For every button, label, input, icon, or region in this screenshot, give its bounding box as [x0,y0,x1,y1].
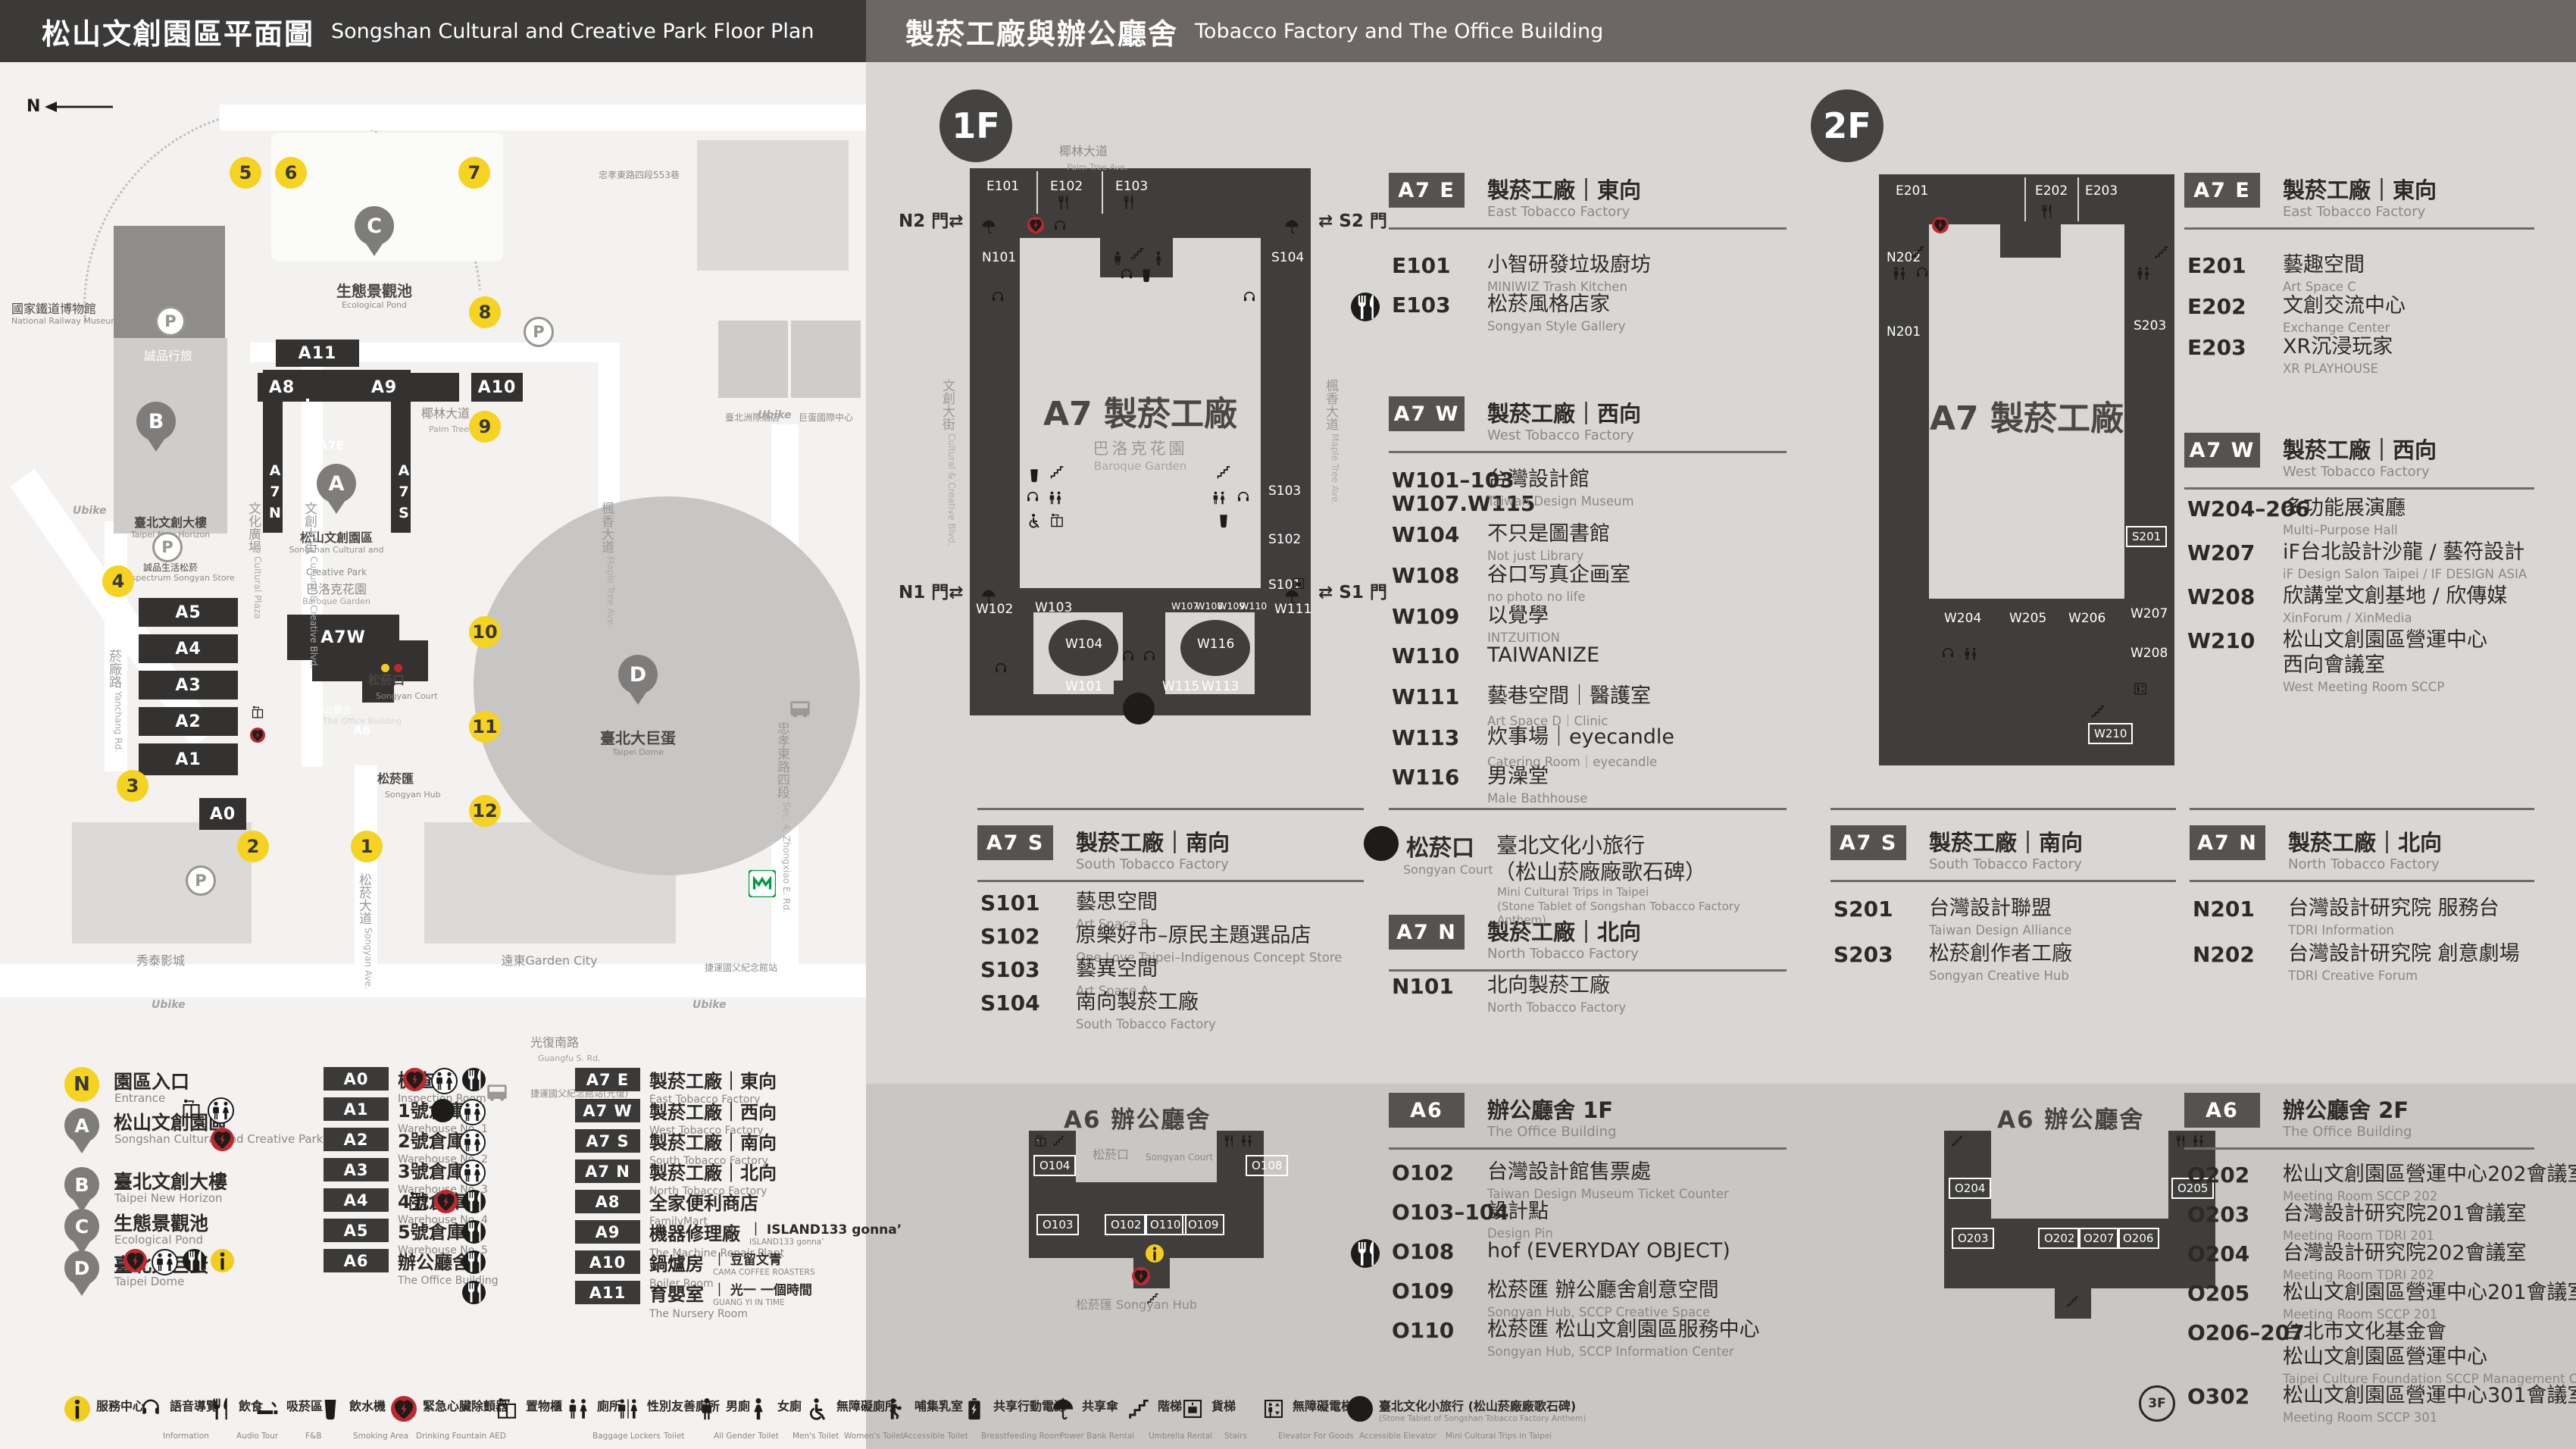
strip-label-zh: 共享傘 [1082,1396,1118,1414]
strip-item: 男廁 Men's Toilet [694,1396,750,1422]
strip-labels: 哺集乳室 Breastfeeding Room [914,1396,963,1422]
strip-item: 緊急心臟除顫器 AED [391,1396,508,1422]
strip-icon [1126,1396,1152,1422]
strip-icon [391,1396,417,1422]
umbrella-icon [1050,1396,1076,1422]
strip-item: 女廁 Women's Toilet [746,1396,802,1422]
smoking-icon [255,1396,280,1422]
strip-label-zh: 階梯 [1158,1396,1182,1414]
strip-label-en: Accessible Toilet [903,1432,968,1441]
strip-label-en: All Gender Toilet [714,1432,779,1441]
strip-label-zh: 飲水機 [349,1396,386,1414]
strip-icon [694,1396,720,1422]
strip-label-en: Toilet [664,1432,684,1441]
strip-item: 臺北文化小旅行 (松山菸廠廠歌石碑) Mini Cultural Trips i… [1347,1396,1586,1423]
strip-item: 吸菸區 Smoking Area [255,1396,323,1422]
strip-icon [961,1396,987,1422]
strip-labels: 階梯 Stairs [1158,1396,1182,1422]
wheelchair-icon [805,1396,830,1422]
strip-labels: 置物櫃 Baggage Lockers [526,1396,562,1422]
strip-labels: 飲水機 Drinking Fountain [349,1396,386,1422]
powerbank-icon [961,1396,987,1422]
walk-icon [1347,1396,1373,1422]
strip-icon [317,1396,343,1422]
strip-label-en: Information [163,1432,209,1441]
strip-labels: 女廁 Women's Toilet [777,1396,802,1422]
strip-labels: 臺北文化小旅行 (松山菸廠廠歌石碑) Mini Cultural Trips i… [1379,1396,1586,1423]
strip-item: 廁所 Toilet [565,1396,621,1422]
strip-icon [494,1396,520,1422]
strip-labels: 無障礙電梯 Accessible Elevator [1293,1396,1353,1422]
strip-label-en: Elevator For Goods [1278,1432,1354,1441]
strip-labels: 共享傘 Umbrella Rental [1082,1396,1118,1422]
facility-icon-strip: 服務中心 Information 語音導覽 Audio Tour 飲食 [0,0,2576,1449]
strip-icon [138,1396,164,1422]
strip-label-en: Stairs [1224,1432,1247,1441]
strip-icon [1050,1396,1076,1422]
strip-item: 哺集乳室 Breastfeeding Room [883,1396,963,1422]
strip-label-zh: 置物櫃 [526,1396,562,1414]
men-icon [694,1396,720,1422]
fountain-icon [317,1396,343,1422]
strip-label-en: Breastfeeding Room [981,1432,1062,1441]
allgender-icon [615,1396,641,1422]
strip-label-zh: 無障礙電梯 [1293,1396,1353,1414]
nursing-icon [883,1396,908,1422]
strip-icon [207,1396,233,1422]
toilet-icon [565,1396,591,1422]
strip-label-en: Smoking Area [353,1432,408,1441]
strip-label-zh: 貨梯 [1211,1396,1236,1414]
elevator-icon [1261,1396,1286,1422]
women-icon [746,1396,771,1422]
strip-label-en: Drinking Fountain [416,1432,486,1441]
strip-label-en: Power Bank Rental [1060,1432,1134,1441]
info-icon [64,1396,90,1422]
strip-item: 共享傘 Umbrella Rental [1050,1396,1118,1422]
strip-label-en: F&B [305,1432,321,1441]
strip-label-zh: 哺集乳室 [914,1396,963,1414]
strip-label-en: AED [489,1432,506,1441]
strip-label-zh: 臺北文化小旅行 (松山菸廠廠歌石碑) [1379,1396,1586,1414]
strip-icon [615,1396,641,1422]
strip-item: 階梯 Stairs [1126,1396,1182,1422]
strip-label-en: Women's Toilet [844,1432,904,1441]
strip-label-en: Audio Tour [236,1432,278,1441]
strip-label-zh: 女廁 [777,1396,802,1414]
strip-label-en: Umbrella Rental [1149,1432,1212,1441]
strip-label-en2: (Stone Tablet of Songshan Tobacco Factor… [1379,1414,1586,1423]
strip-item: 無障礙電梯 Accessible Elevator [1261,1396,1353,1422]
strip-labels: 貨梯 Elevator For Goods [1211,1396,1236,1422]
strip-icon [1347,1396,1373,1423]
goods-icon [1180,1396,1205,1422]
locker-icon [494,1396,520,1422]
strip-icon [565,1396,591,1422]
strip-icon [883,1396,908,1422]
strip-item: 服務中心 Information [64,1396,145,1422]
strip-item: 貨梯 Elevator For Goods [1180,1396,1236,1422]
strip-icon [64,1396,90,1422]
strip-label-en: Baggage Lockers [592,1432,661,1441]
strip-icon [805,1396,830,1422]
strip-label-en: Accessible Elevator [1359,1432,1436,1441]
strip-item: 置物櫃 Baggage Lockers [494,1396,562,1422]
strip-icon [255,1396,280,1422]
strip-label-en: Mini Cultural Trips in Taipei [1446,1432,1552,1441]
aed-icon [391,1396,417,1422]
stairs-icon [1126,1396,1152,1422]
strip-icon [1261,1396,1286,1422]
fnb-icon [207,1396,233,1422]
audio-icon [138,1396,164,1422]
strip-icon [1180,1396,1205,1422]
strip-label-en: Men's Toilet [792,1432,839,1441]
strip-icon [746,1396,771,1422]
strip-item: 飲水機 Drinking Fountain [317,1396,386,1422]
